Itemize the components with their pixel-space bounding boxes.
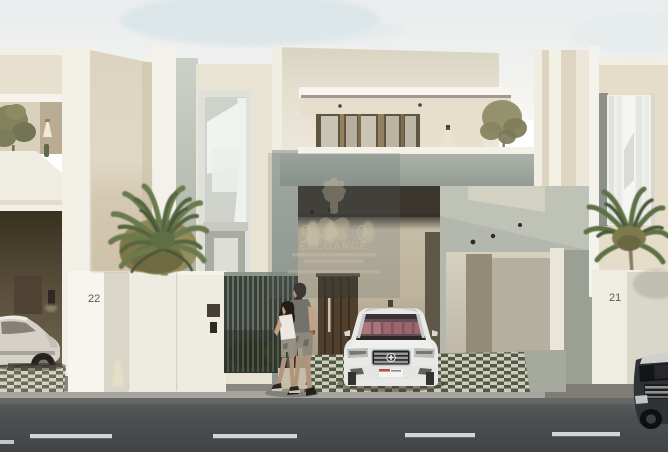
svg-text:22: 22	[88, 293, 100, 305]
svg-text:21: 21	[609, 292, 621, 304]
svg-text:ELEGANCE: ELEGANCE	[300, 241, 369, 252]
